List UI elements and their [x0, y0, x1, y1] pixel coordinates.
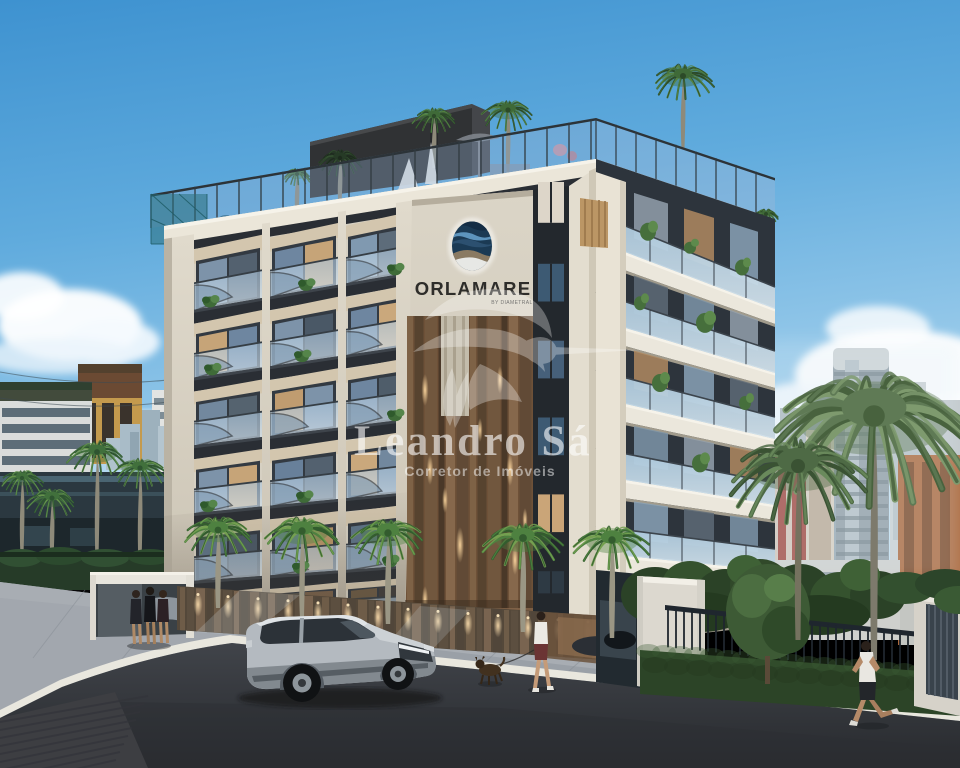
svg-text:Leandro Sá: Leandro Sá	[354, 418, 592, 465]
svg-text:Corretor de Imóveis: Corretor de Imóveis	[404, 463, 555, 479]
